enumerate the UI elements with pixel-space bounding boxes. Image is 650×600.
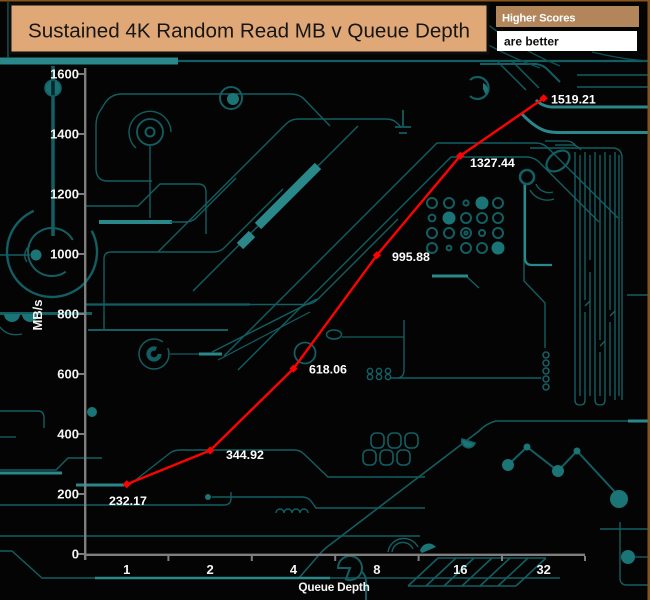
svg-text:1519.21: 1519.21 — [551, 93, 596, 107]
svg-text:1400: 1400 — [50, 127, 79, 142]
svg-text:0: 0 — [72, 547, 79, 562]
svg-text:2: 2 — [206, 562, 213, 577]
svg-text:8: 8 — [373, 562, 380, 577]
svg-text:16: 16 — [453, 562, 467, 577]
svg-text:1: 1 — [123, 562, 130, 577]
svg-text:are better: are better — [504, 35, 559, 49]
svg-text:995.88: 995.88 — [392, 250, 430, 264]
svg-text:4: 4 — [290, 562, 298, 577]
svg-text:400: 400 — [57, 427, 79, 442]
svg-text:MB/s: MB/s — [30, 299, 45, 330]
svg-text:1200: 1200 — [50, 187, 79, 202]
svg-text:344.92: 344.92 — [226, 448, 264, 462]
svg-text:200: 200 — [57, 487, 79, 502]
svg-text:232.17: 232.17 — [109, 494, 147, 508]
svg-text:Sustained 4K Random Read MB v: Sustained 4K Random Read MB v Queue Dept… — [28, 20, 470, 43]
svg-text:1000: 1000 — [50, 247, 79, 262]
svg-text:800: 800 — [57, 307, 79, 322]
svg-text:Queue Depth: Queue Depth — [298, 580, 369, 594]
svg-text:32: 32 — [536, 562, 550, 577]
svg-text:1600: 1600 — [50, 67, 79, 82]
svg-text:618.06: 618.06 — [309, 363, 347, 377]
svg-text:1327.44: 1327.44 — [470, 156, 515, 170]
svg-text:Higher Scores: Higher Scores — [502, 13, 575, 25]
svg-text:600: 600 — [57, 367, 79, 382]
